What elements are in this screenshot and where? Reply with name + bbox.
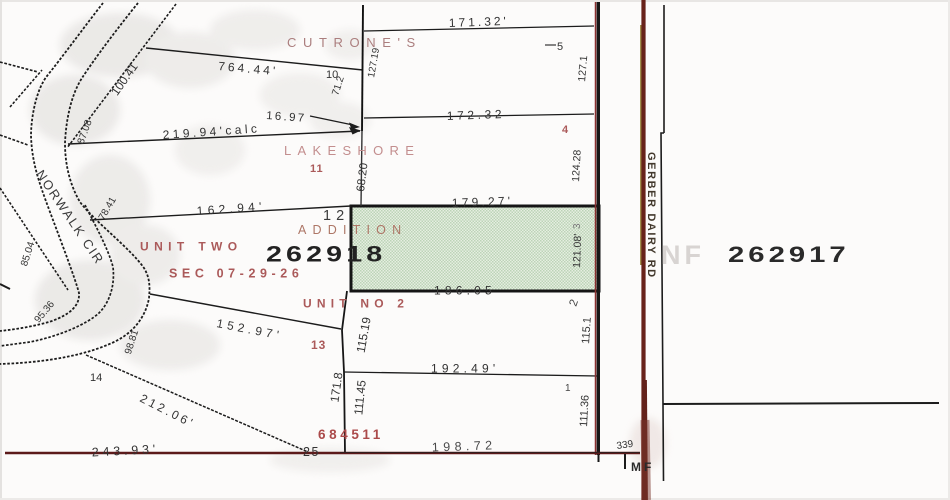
svg-text:13: 13	[311, 338, 326, 352]
svg-text:1: 1	[565, 383, 571, 394]
svg-text:25: 25	[303, 445, 320, 459]
svg-text:111.36: 111.36	[578, 395, 592, 428]
svg-text:14: 14	[90, 372, 102, 384]
svg-text:172.32: 172.32	[447, 107, 506, 123]
svg-text:186.05: 186.05	[434, 284, 496, 298]
svg-text:4: 4	[562, 124, 569, 136]
svg-text:192.49': 192.49'	[431, 362, 499, 376]
svg-text:179.27': 179.27'	[452, 194, 514, 210]
svg-text:124.28: 124.28	[570, 149, 584, 182]
svg-text:171.32': 171.32'	[449, 14, 509, 30]
svg-text:NF: NF	[661, 240, 705, 270]
svg-text:198.72: 198.72	[432, 438, 497, 454]
svg-text:12: 12	[323, 208, 349, 224]
svg-text:684511: 684511	[318, 427, 384, 442]
svg-text:SEC 07-29-26: SEC 07-29-26	[169, 267, 303, 281]
svg-text:11: 11	[310, 163, 324, 175]
svg-text:CUTRONE'S: CUTRONE'S	[287, 35, 422, 50]
svg-text:MF: MF	[631, 460, 654, 474]
svg-text:LAKESHORE: LAKESHORE	[284, 143, 420, 158]
svg-text:UNIT NO 2: UNIT NO 2	[303, 297, 409, 311]
svg-text:121.08': 121.08'	[571, 234, 584, 269]
svg-text:UNIT TWO: UNIT TWO	[140, 240, 243, 254]
svg-text:GERBER DAIRY RD: GERBER DAIRY RD	[645, 152, 657, 279]
svg-text:262917: 262917	[728, 241, 850, 267]
svg-text:ADDITION: ADDITION	[298, 223, 407, 237]
svg-text:5: 5	[557, 41, 563, 53]
svg-text:262918: 262918	[266, 243, 386, 267]
svg-text:3: 3	[572, 223, 583, 229]
svg-text:115.1: 115.1	[580, 317, 594, 344]
svg-text:127.1: 127.1	[576, 55, 590, 82]
